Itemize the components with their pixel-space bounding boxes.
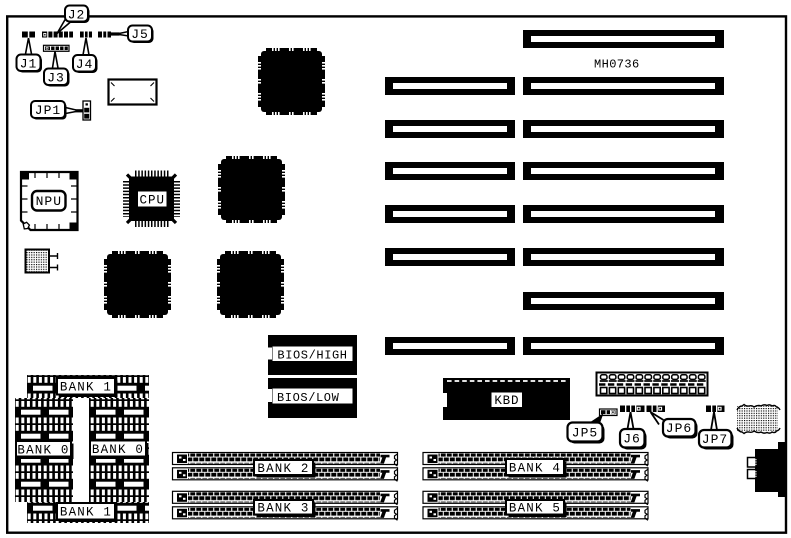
svg-text:JP1: JP1: [35, 103, 61, 118]
svg-text:BANK 1: BANK 1: [60, 506, 112, 520]
svg-text:JP6: JP6: [666, 421, 692, 436]
svg-text:BANK 2: BANK 2: [257, 462, 309, 476]
svg-text:J1: J1: [20, 57, 38, 72]
svg-text:CPU: CPU: [139, 194, 165, 208]
svg-text:JP7: JP7: [702, 432, 728, 447]
svg-text:KBD: KBD: [494, 394, 519, 408]
svg-text:BANK 4: BANK 4: [509, 462, 561, 476]
svg-text:J2: J2: [68, 8, 86, 23]
svg-text:J3: J3: [47, 71, 65, 86]
svg-text:J6: J6: [623, 432, 641, 447]
svg-text:BIOS/HIGH: BIOS/HIGH: [277, 349, 347, 363]
svg-text:BANK 0: BANK 0: [17, 444, 69, 458]
svg-text:BANK 3: BANK 3: [257, 502, 309, 516]
svg-text:BANK 0: BANK 0: [92, 443, 144, 457]
svg-text:NPU: NPU: [36, 194, 62, 209]
svg-text:MH0736: MH0736: [594, 58, 640, 72]
svg-text:BANK 1: BANK 1: [60, 381, 112, 395]
svg-text:J4: J4: [76, 57, 94, 72]
svg-text:JP5: JP5: [572, 426, 598, 441]
svg-text:J5: J5: [131, 27, 149, 42]
svg-text:BIOS/LOW: BIOS/LOW: [277, 391, 340, 405]
svg-text:BANK 5: BANK 5: [509, 502, 561, 516]
